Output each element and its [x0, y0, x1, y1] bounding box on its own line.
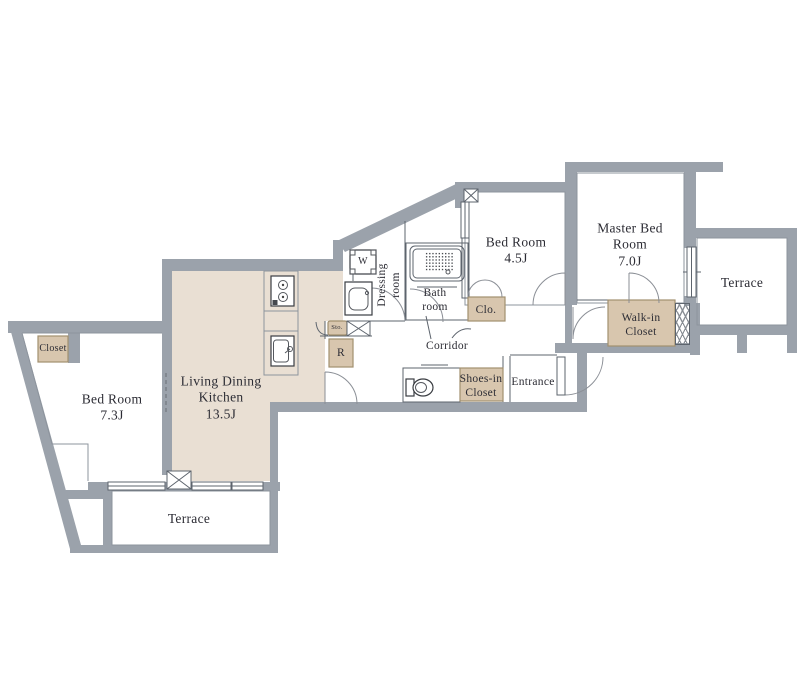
master-size: 7.0J — [597, 253, 663, 269]
clo-double-door-arcs — [468, 280, 502, 297]
shoes-line2: Closet — [460, 386, 503, 400]
bedroom2-size: 4.5J — [486, 251, 547, 267]
ldk-size: 13.5J — [181, 406, 262, 422]
dressing-line2: room — [389, 263, 403, 306]
master-door-arc — [573, 307, 605, 339]
hatched-column — [675, 303, 690, 345]
bedroom1-label: Bed Room 7.3J — [82, 392, 143, 425]
shaft-box-icon — [347, 321, 370, 336]
refrigerator-label: R — [337, 346, 345, 360]
bathtub-mat-pattern — [425, 252, 454, 272]
entrance-label: Entrance — [511, 375, 554, 389]
walkin-line2: Closet — [622, 325, 661, 339]
shoes-closet-label: Shoes-in Closet — [460, 372, 503, 400]
walkin-line1: Walk-in — [622, 311, 661, 325]
ldk-name-line1: Living Dining — [181, 373, 262, 389]
ldk-label: Living Dining Kitchen 13.5J — [181, 373, 262, 422]
master-name-line1: Master Bed — [597, 220, 663, 236]
bedroom2-name: Bed Room — [486, 235, 547, 251]
ldk-door-arc — [325, 372, 357, 404]
shaft-box-icon — [464, 189, 478, 202]
corridor-label: Corridor — [426, 339, 468, 353]
entrance-door-leaf — [557, 357, 565, 395]
walkin-closet-label: Walk-in Closet — [622, 311, 661, 339]
floor-plan: Closet Bed Room 7.3J Living Dining Kitch… — [0, 0, 800, 684]
vanity-sink-icon — [345, 282, 372, 315]
walkin-door-arc — [629, 273, 659, 303]
clo-label: Clo. — [476, 303, 497, 317]
shoes-line1: Shoes-in — [460, 372, 503, 386]
kitchen-sink-icon — [271, 336, 294, 366]
dressing-room-label: Dressing room — [375, 263, 403, 306]
bedroom2-door-arc — [533, 273, 565, 305]
bathroom-label: Bath room — [422, 286, 447, 314]
bedroom2-label: Bed Room 4.5J — [486, 235, 547, 268]
terrace-bottom-label: Terrace — [168, 511, 210, 527]
bedroom1-size: 7.3J — [82, 408, 143, 424]
bath-line1: Bath — [422, 286, 447, 300]
dressing-line1: Dressing — [375, 263, 389, 306]
ldk-name-line2: Kitchen — [181, 390, 262, 406]
toilet-icon — [406, 379, 433, 396]
washer-label: W — [358, 256, 368, 268]
shaft-box-icon — [167, 471, 191, 489]
master-name-line2: Room — [597, 237, 663, 253]
bath-line2: room — [422, 300, 447, 314]
stove-icon — [271, 276, 294, 306]
walls — [8, 162, 797, 553]
bedroom1-name: Bed Room — [82, 392, 143, 408]
closet-label: Closet — [39, 343, 66, 355]
terrace-right-label: Terrace — [721, 275, 763, 291]
storage-label: Sto. — [331, 324, 343, 332]
master-bedroom-label: Master Bed Room 7.0J — [597, 220, 663, 269]
